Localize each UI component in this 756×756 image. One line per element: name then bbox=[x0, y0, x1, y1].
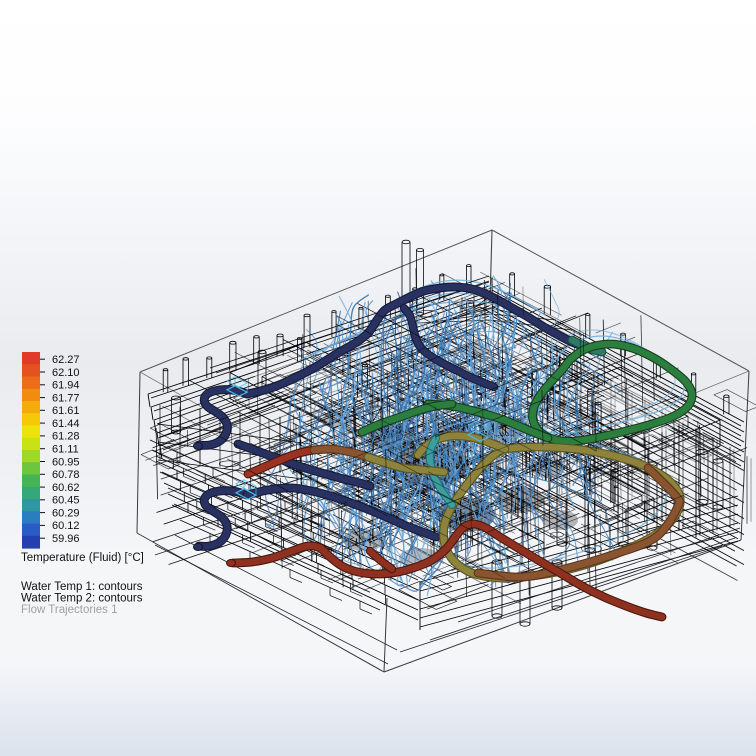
svg-text:60.95: 60.95 bbox=[52, 456, 80, 468]
svg-text:61.94: 61.94 bbox=[52, 380, 80, 392]
svg-text:59.96: 59.96 bbox=[52, 533, 80, 545]
svg-text:Temperature (Fluid) [°C]: Temperature (Fluid) [°C] bbox=[21, 552, 144, 564]
svg-text:60.45: 60.45 bbox=[52, 495, 80, 507]
svg-text:61.44: 61.44 bbox=[52, 418, 80, 430]
svg-text:Water Temp 1: contours: Water Temp 1: contours bbox=[21, 581, 143, 593]
svg-text:62.10: 62.10 bbox=[52, 367, 80, 379]
svg-text:61.11: 61.11 bbox=[52, 444, 79, 456]
svg-text:60.78: 60.78 bbox=[52, 469, 80, 481]
svg-text:62.27: 62.27 bbox=[52, 354, 80, 366]
svg-text:60.62: 60.62 bbox=[52, 482, 80, 494]
svg-text:60.12: 60.12 bbox=[52, 520, 80, 532]
svg-text:60.29: 60.29 bbox=[52, 507, 80, 519]
svg-text:61.28: 61.28 bbox=[52, 431, 80, 443]
svg-text:Water Temp 2: contours: Water Temp 2: contours bbox=[21, 593, 143, 605]
svg-text:61.77: 61.77 bbox=[52, 392, 80, 404]
svg-text:Flow Trajectories 1: Flow Trajectories 1 bbox=[21, 604, 118, 616]
svg-text:61.61: 61.61 bbox=[52, 405, 80, 417]
